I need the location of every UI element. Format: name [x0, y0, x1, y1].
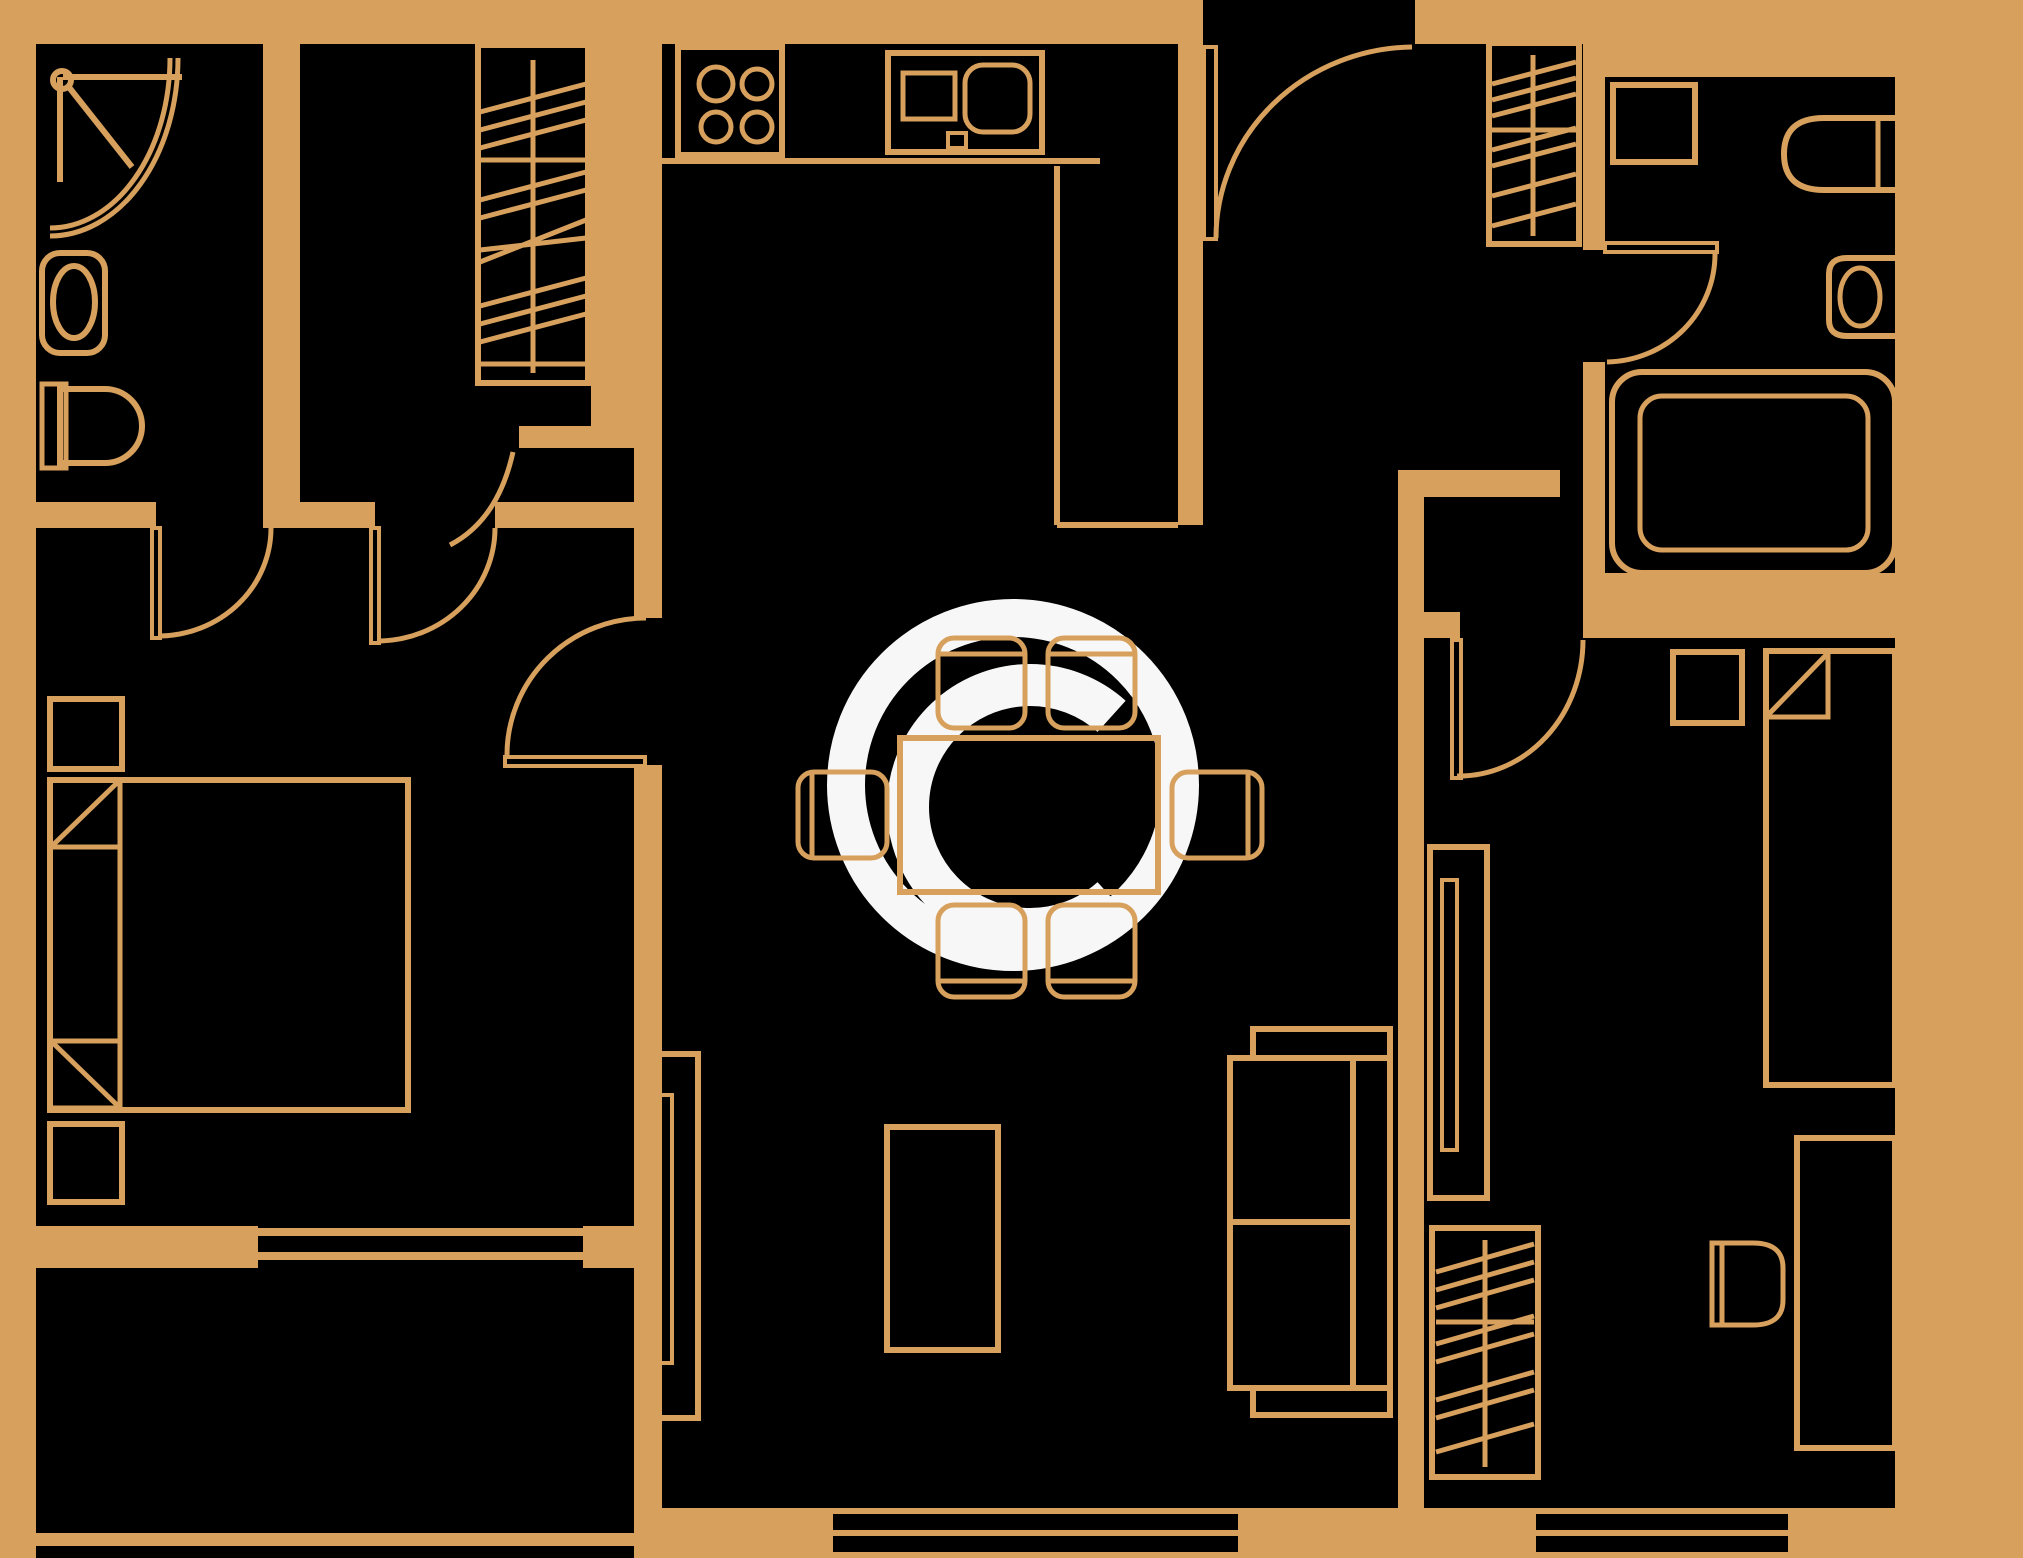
floor-plan: ©	[0, 0, 2023, 1558]
balcony	[36, 1268, 634, 1558]
entrance-opening	[1203, 0, 1415, 46]
bedroom-1-window	[258, 1228, 583, 1236]
bedroom-2-window	[1536, 1514, 1788, 1530]
living-room-window	[833, 1514, 1238, 1530]
wall-stub	[1398, 470, 1560, 497]
wall	[263, 44, 300, 528]
balcony-railing	[36, 1533, 634, 1546]
